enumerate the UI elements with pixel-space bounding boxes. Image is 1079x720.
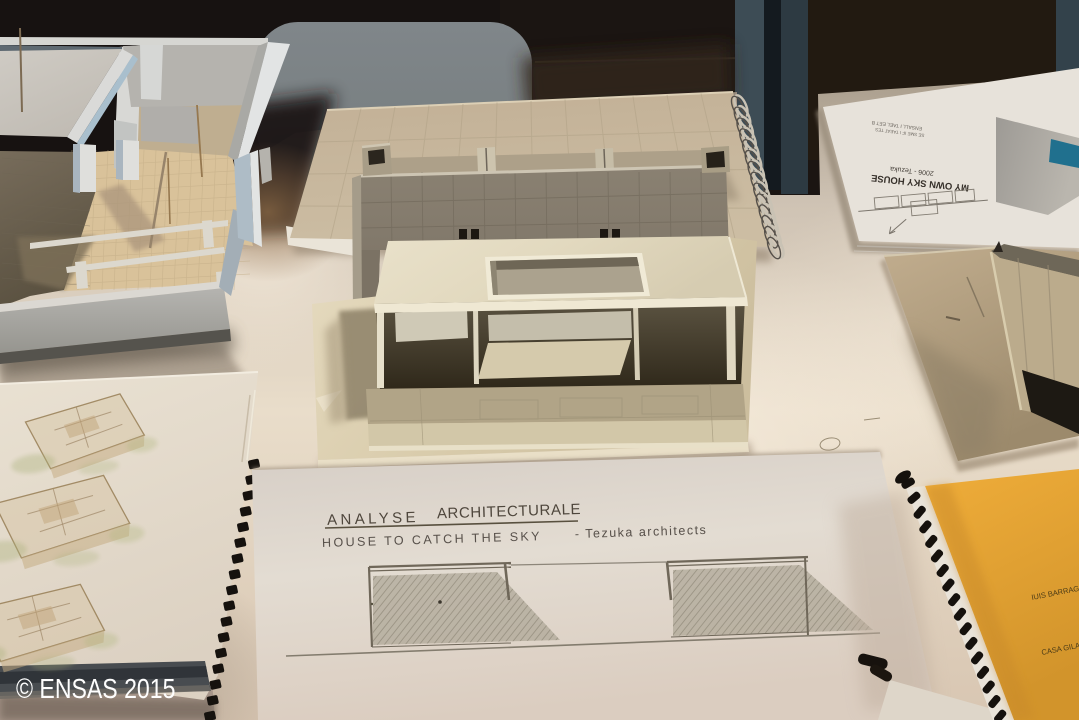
- svg-text:© ENSAS 2015: © ENSAS 2015: [16, 674, 175, 704]
